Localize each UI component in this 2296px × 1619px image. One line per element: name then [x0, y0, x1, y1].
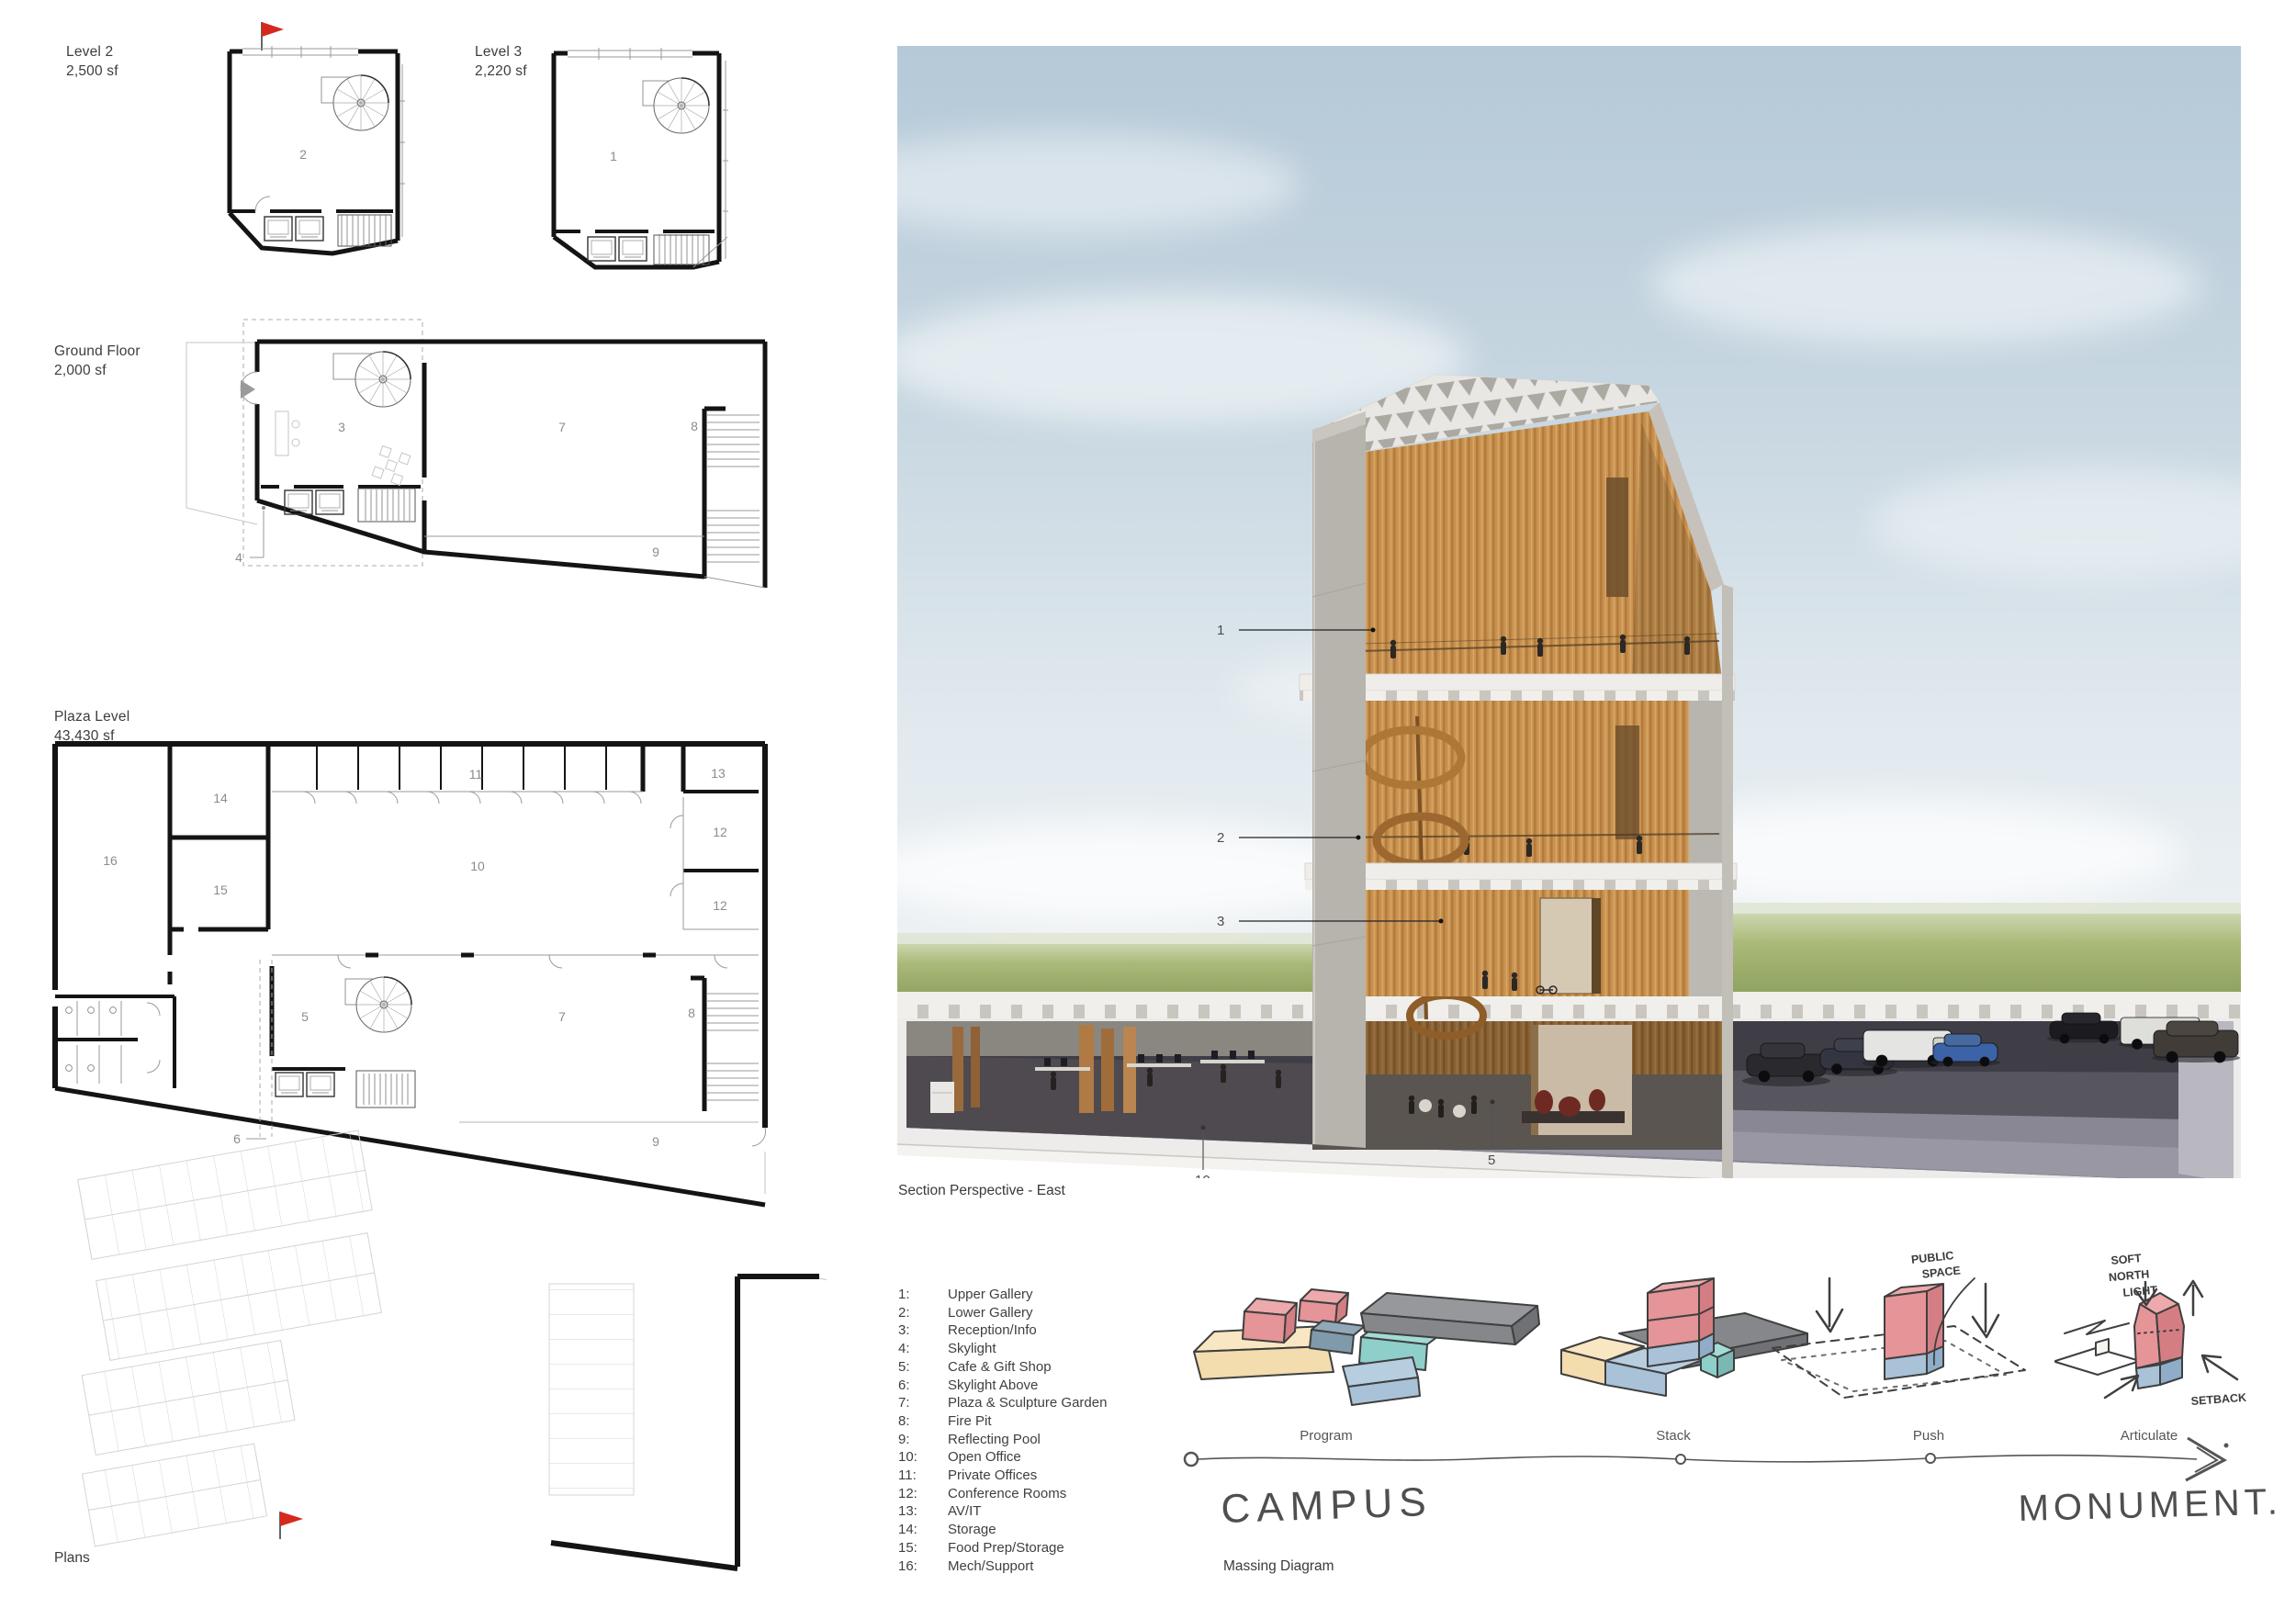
- legend-label: Fire Pit: [948, 1412, 992, 1431]
- callout-lower-gallery: 2: [1217, 830, 1224, 846]
- legend-number: 2:: [898, 1304, 948, 1322]
- legend-number: 8:: [898, 1412, 948, 1431]
- anno-north: NORTH: [2108, 1267, 2150, 1284]
- legend-item: 2:Lower Gallery: [898, 1304, 1165, 1322]
- stage-label-push: Push: [1913, 1428, 1944, 1444]
- red-flag-icon: [262, 22, 284, 37]
- legend-item: 16:Mech/Support: [898, 1557, 1165, 1576]
- room-label-private-offices: 11: [469, 767, 483, 781]
- legend-label: Skylight: [948, 1340, 996, 1358]
- legend-number: 9:: [898, 1431, 948, 1449]
- massing-stack-sketch: [1561, 1278, 1807, 1396]
- legend-number: 1:: [898, 1286, 948, 1304]
- stage-label-stack: Stack: [1656, 1428, 1691, 1444]
- legend-label: Food Prep/Storage: [948, 1539, 1064, 1557]
- room-label-mech: 16: [103, 853, 118, 868]
- callout-reception: 3: [1217, 914, 1224, 929]
- legend-item: 12:Conference Rooms: [898, 1485, 1165, 1503]
- legend-label: Skylight Above: [948, 1377, 1038, 1395]
- legend-label: AV/IT: [948, 1502, 981, 1521]
- room-label-reception: 3: [338, 420, 345, 434]
- room-label-firepit: 8: [691, 419, 698, 433]
- legend-item: 10:Open Office: [898, 1448, 1165, 1467]
- section-caption: Section Perspective - East: [898, 1183, 1065, 1199]
- anno-public: PUBLIC: [1910, 1249, 1954, 1266]
- anno-soft: SOFT: [2110, 1252, 2143, 1267]
- callout-label-skylight-above: 6: [233, 1131, 241, 1146]
- handwriting-monument: MONUMENT.: [2018, 1481, 2278, 1529]
- legend-number: 6:: [898, 1377, 948, 1395]
- ceiling-joists: [897, 1005, 2241, 1018]
- legend-number: 14:: [898, 1521, 948, 1539]
- timeline-start-node: [1185, 1453, 1198, 1466]
- skylight-callout: 4: [235, 506, 265, 565]
- legend-number: 11:: [898, 1467, 948, 1485]
- room-label-conference-b: 12: [713, 898, 727, 913]
- callout-upper-gallery: 1: [1217, 623, 1224, 638]
- legend: 1:Upper Gallery 2:Lower Gallery 3:Recept…: [898, 1286, 1165, 1575]
- stage-label-articulate: Articulate: [2121, 1428, 2178, 1444]
- floor-plans-drawing: 2 1: [0, 0, 827, 1619]
- reception-wood-wall: [1320, 890, 1722, 996]
- cafe-interior: [1312, 1021, 1722, 1150]
- room-label-conference-a: 12: [713, 825, 727, 839]
- section-perspective-rendering: 1 2 3 10 5: [897, 46, 2241, 1178]
- legend-label: Plaza & Sculpture Garden: [948, 1394, 1107, 1412]
- legend-label: Reflecting Pool: [948, 1431, 1041, 1449]
- legend-item: 13:AV/IT: [898, 1502, 1165, 1521]
- legend-item: 1:Upper Gallery: [898, 1286, 1165, 1304]
- entry-arrow-icon: [241, 380, 255, 399]
- restrooms: [55, 996, 174, 1088]
- room-label-storage: 14: [213, 791, 228, 805]
- massing-diagram: Program Stack Push Articulate CAMPUS MON…: [1176, 1235, 2278, 1619]
- window-slit: [1606, 478, 1628, 597]
- legend-number: 10:: [898, 1448, 948, 1467]
- room-label-upper-gallery: 1: [610, 149, 617, 163]
- reception-desk: [276, 411, 299, 455]
- room-label-firepit: 8: [688, 1006, 695, 1020]
- legend-number: 7:: [898, 1394, 948, 1412]
- room-label-avit: 13: [711, 766, 726, 781]
- presentation-sheet: Level 2 2,500 sf Level 3 2,220 sf Ground…: [0, 0, 2296, 1619]
- legend-number: 12:: [898, 1485, 948, 1503]
- legend-label: Conference Rooms: [948, 1485, 1066, 1503]
- legend-item: 3:Reception/Info: [898, 1321, 1165, 1340]
- anno-space: SPACE: [1921, 1264, 1961, 1280]
- room-label-plaza: 7: [558, 420, 566, 434]
- legend-number: 3:: [898, 1321, 948, 1340]
- room-label-plaza-garden: 7: [558, 1009, 566, 1024]
- massing-program-sketch: [1194, 1289, 1539, 1405]
- concrete-pier-left: [1312, 424, 1366, 1148]
- plaza-floor-slab: [1305, 863, 1737, 880]
- legend-label: Storage: [948, 1521, 996, 1539]
- callout-label-skylight: 4: [235, 550, 242, 565]
- plan-level2: 2: [230, 22, 405, 253]
- section-caption-text: Section Perspective - East: [898, 1183, 1065, 1198]
- legend-label: Cafe & Gift Shop: [948, 1358, 1052, 1377]
- anno-setback: SETBACK: [2190, 1391, 2246, 1408]
- legend-number: 13:: [898, 1502, 948, 1521]
- massing-timeline: [1185, 1438, 2228, 1480]
- room-label-foodprep: 15: [213, 883, 228, 897]
- legend-item: 8:Fire Pit: [898, 1412, 1165, 1431]
- timeline-node: [1926, 1454, 1935, 1463]
- callout-cafe: 5: [1488, 1152, 1495, 1168]
- massing-articulate-sketch: [2055, 1281, 2237, 1398]
- stage-label-program: Program: [1300, 1428, 1353, 1444]
- room-label-pool: 9: [652, 545, 659, 559]
- legend-item: 11:Private Offices: [898, 1467, 1165, 1485]
- parking-stalls: [78, 1130, 634, 1546]
- concrete-wall-right: [1722, 584, 1733, 1178]
- callout-open-office: 10: [1195, 1173, 1210, 1178]
- legend-number: 16:: [898, 1557, 948, 1576]
- legend-item: 14:Storage: [898, 1521, 1165, 1539]
- legend-item: 7:Plaza & Sculpture Garden: [898, 1394, 1165, 1412]
- grass-field-right: [1705, 914, 2241, 1001]
- room-label-open-office: 10: [470, 859, 485, 873]
- legend-item: 15:Food Prep/Storage: [898, 1539, 1165, 1557]
- legend-label: Lower Gallery: [948, 1304, 1033, 1322]
- plan-level3: 1: [554, 48, 728, 267]
- legend-label: Upper Gallery: [948, 1286, 1033, 1304]
- legend-item: 9:Reflecting Pool: [898, 1431, 1165, 1449]
- legend-label: Open Office: [948, 1448, 1021, 1467]
- room-label-lower-gallery: 2: [299, 147, 307, 162]
- legend-number: 15:: [898, 1539, 948, 1557]
- room-label-pool: 9: [652, 1134, 659, 1149]
- massing-caption: Massing Diagram: [1223, 1558, 1334, 1574]
- legend-item: 6:Skylight Above: [898, 1377, 1165, 1395]
- legend-item: 4:Skylight: [898, 1340, 1165, 1358]
- legend-label: Mech/Support: [948, 1557, 1033, 1576]
- legend-number: 4:: [898, 1340, 948, 1358]
- legend-item: 5:Cafe & Gift Shop: [898, 1358, 1165, 1377]
- legend-label: Private Offices: [948, 1467, 1037, 1485]
- legend-label: Reception/Info: [948, 1321, 1037, 1340]
- legend-number: 5:: [898, 1358, 948, 1377]
- open-office-interior: [906, 1021, 1312, 1144]
- skylight-above-callout: 6: [233, 1131, 266, 1146]
- tables: [372, 446, 411, 486]
- red-flag-icon: [280, 1512, 303, 1526]
- handwriting-campus: CAMPUS: [1221, 1479, 1434, 1532]
- plan-plaza-level: 16 14 15 11 13 12 12 10 5 7 8 9 6: [55, 744, 827, 1568]
- doorway: [1540, 898, 1593, 994]
- massing-push-sketch: [1773, 1278, 2025, 1398]
- plan-ground-floor: 3 7 8 9 4: [186, 320, 765, 588]
- room-label-cafe: 5: [301, 1009, 309, 1024]
- timeline-node: [1676, 1455, 1685, 1464]
